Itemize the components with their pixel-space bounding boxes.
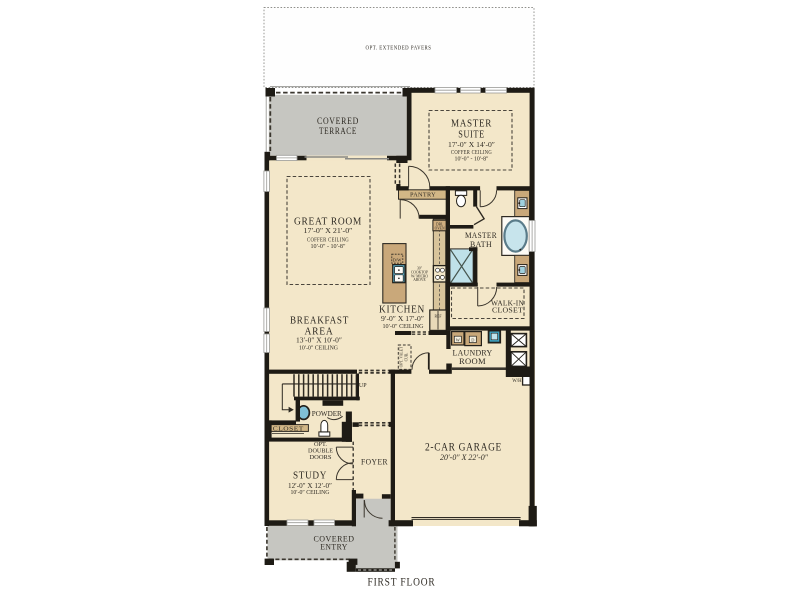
svg-text:DOORS: DOORS [310, 455, 332, 461]
svg-text:COFFER CEILING: COFFER CEILING [451, 149, 492, 156]
svg-text:STUDY: STUDY [293, 470, 327, 482]
svg-text:CUB.: CUB. [404, 353, 408, 362]
svg-text:17′-0″ X 14′-0″: 17′-0″ X 14′-0″ [448, 140, 495, 149]
svg-text:ROOM: ROOM [459, 357, 486, 366]
svg-text:LAUNDRY: LAUNDRY [453, 348, 493, 357]
svg-text:COVERED: COVERED [317, 116, 359, 126]
svg-text:OPT. EXTENDED PAVERS: OPT. EXTENDED PAVERS [366, 45, 432, 52]
svg-text:10′-0″ CEILING: 10′-0″ CEILING [299, 345, 338, 352]
svg-text:10′-0″ CEILING: 10′-0″ CEILING [383, 323, 424, 330]
svg-text:17′-0″ X 21′-0″: 17′-0″ X 21′-0″ [304, 226, 353, 235]
svg-text:CLOSET: CLOSET [273, 426, 304, 432]
svg-text:D: D [471, 338, 474, 343]
svg-text:ABOVE: ABOVE [413, 278, 426, 282]
svg-text:OVEN: OVEN [435, 226, 445, 230]
svg-text:BATH: BATH [470, 240, 492, 249]
svg-text:POWDER: POWDER [312, 409, 342, 418]
svg-text:FOYER: FOYER [361, 457, 388, 467]
svg-text:OPT. VALET: OPT. VALET [400, 346, 404, 367]
svg-text:COFFER CEILING: COFFER CEILING [307, 237, 349, 244]
svg-text:CLOSET: CLOSET [492, 307, 524, 314]
svg-text:ENTRY: ENTRY [320, 542, 348, 552]
svg-text:REF: REF [435, 315, 442, 319]
svg-text:2-CAR GARAGE: 2-CAR GARAGE [425, 442, 502, 454]
svg-text:13′-0″ X 10′-0″: 13′-0″ X 10′-0″ [296, 335, 342, 344]
svg-text:PANTRY: PANTRY [410, 193, 436, 199]
svg-text:10′-0″ - 10′-8″: 10′-0″ - 10′-8″ [455, 157, 489, 163]
svg-text:WALK-IN: WALK-IN [491, 300, 524, 307]
svg-text:D/W: D/W [393, 257, 403, 262]
svg-text:SUITE: SUITE [458, 129, 485, 141]
svg-text:TERRACE: TERRACE [319, 126, 357, 136]
svg-text:W/H: W/H [512, 379, 522, 384]
svg-text:BREAKFAST: BREAKFAST [290, 316, 349, 327]
svg-text:UP: UP [359, 383, 367, 389]
svg-text:10′-0″ CEILING: 10′-0″ CEILING [291, 489, 330, 496]
svg-text:OPT.: OPT. [314, 442, 328, 448]
svg-text:20′-0″ X 22′-0″: 20′-0″ X 22′-0″ [440, 453, 489, 462]
svg-text:DOUBLE: DOUBLE [308, 449, 333, 455]
svg-text:10′-0″ - 10′-8″: 10′-0″ - 10′-8″ [311, 244, 346, 250]
svg-text:FIRST FLOOR: FIRST FLOOR [368, 576, 436, 588]
